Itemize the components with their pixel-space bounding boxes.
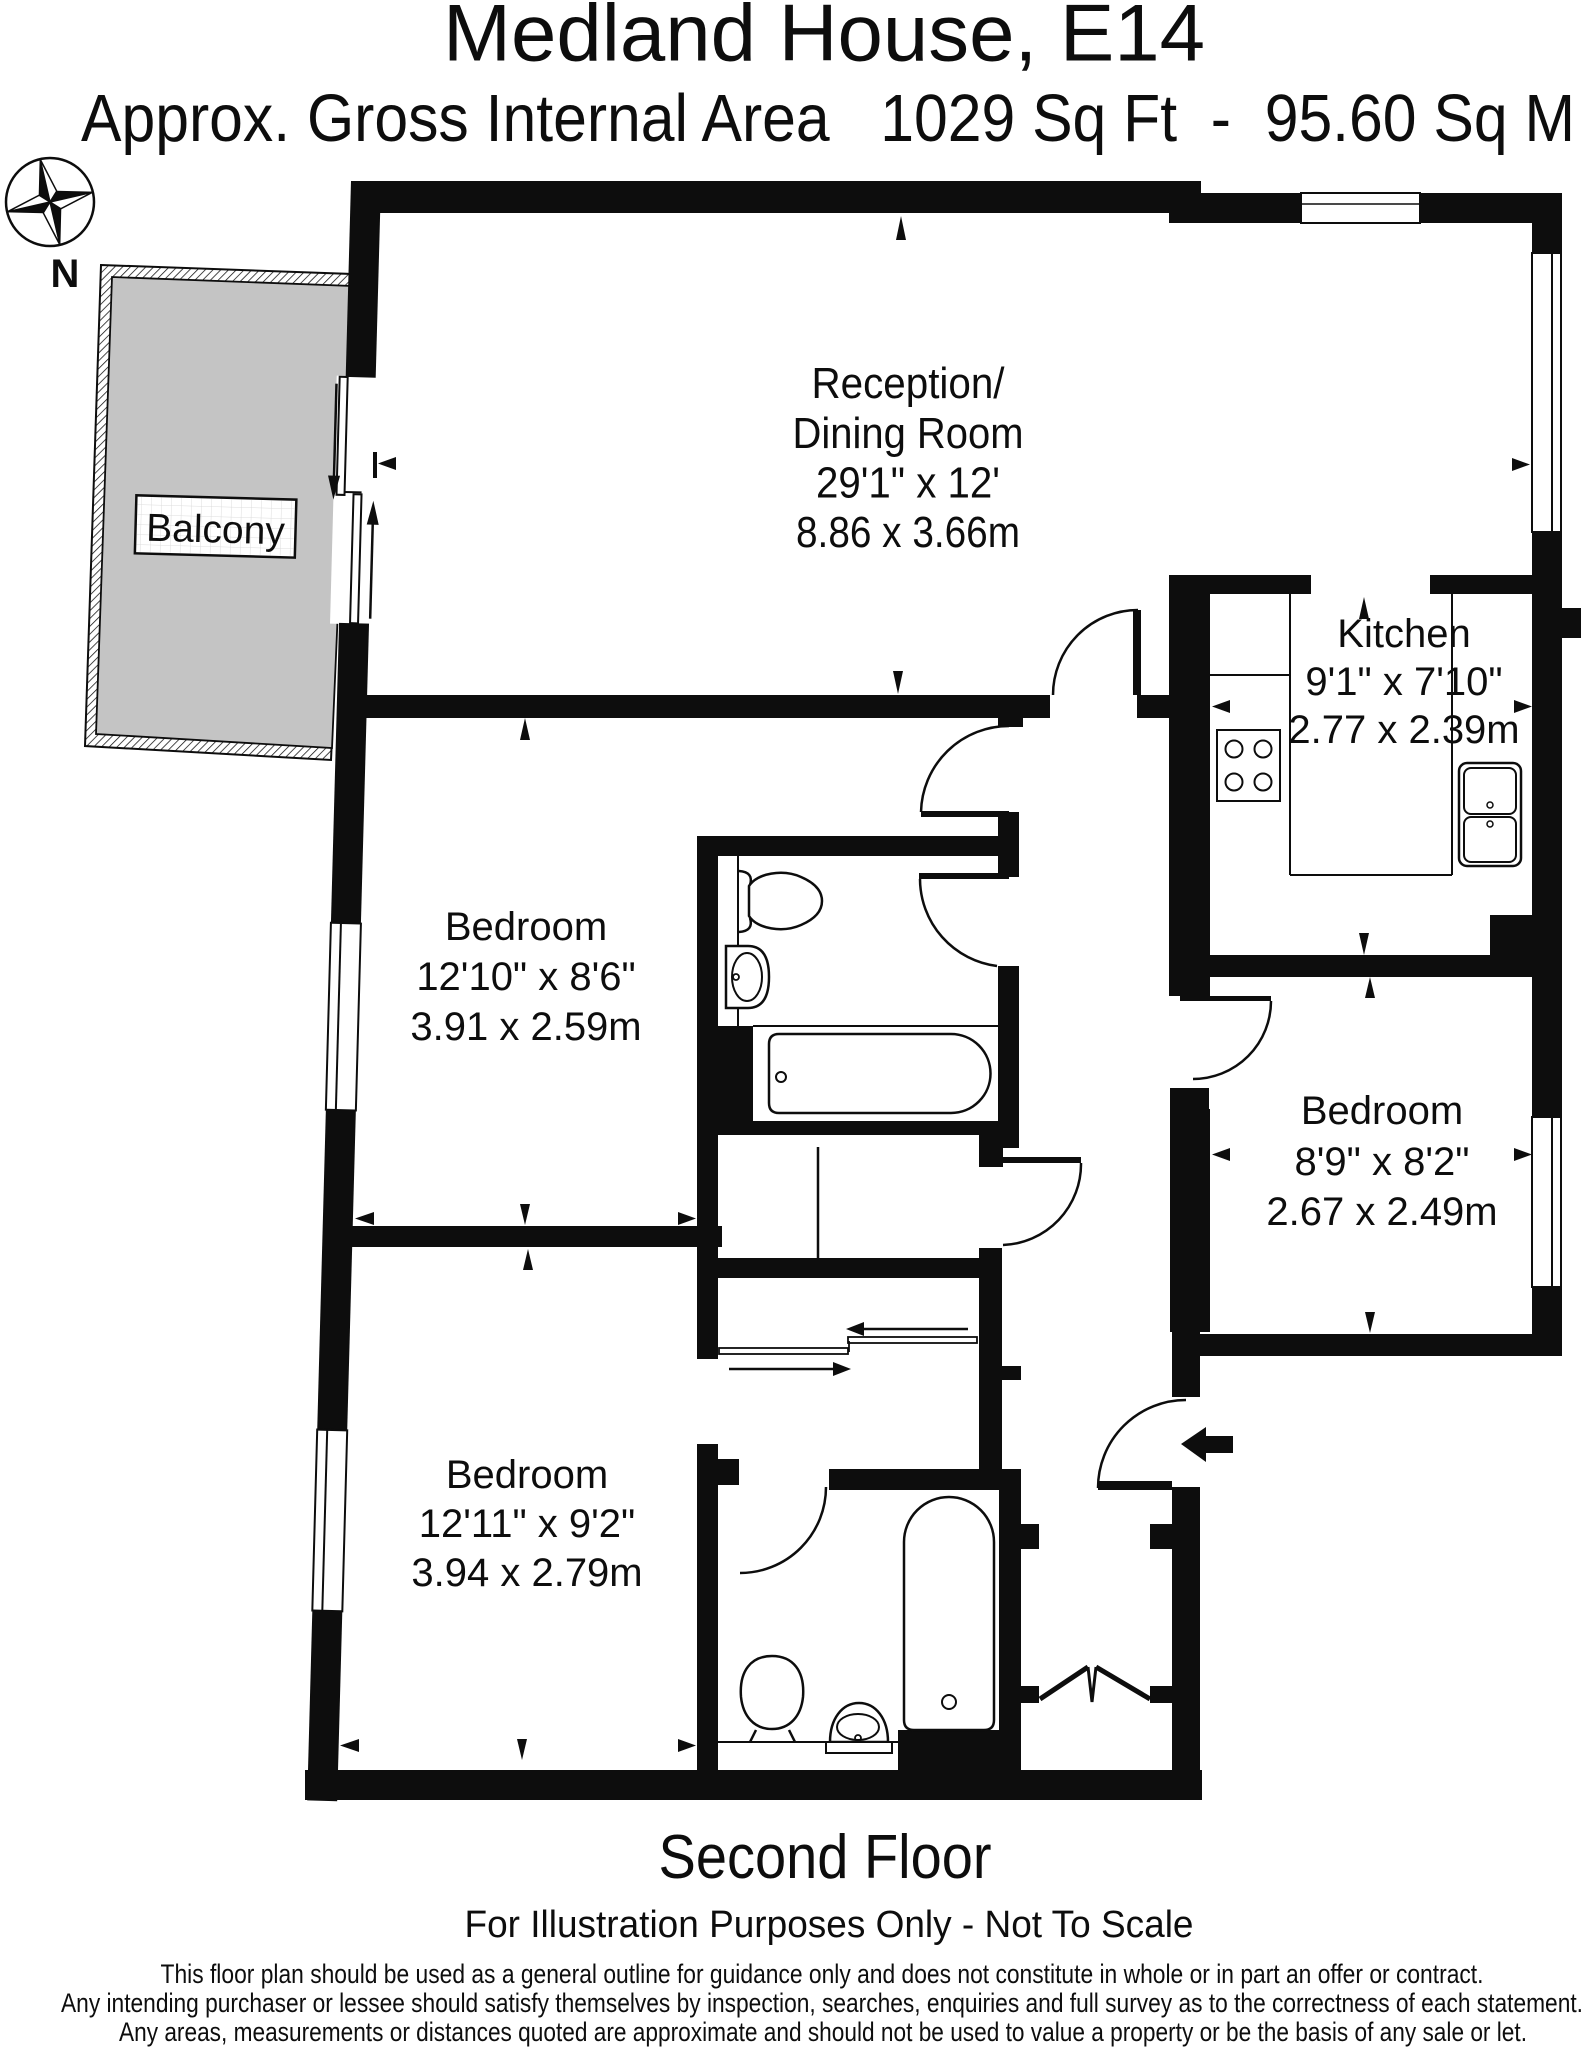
svg-text:Any intending purchaser or les: Any intending purchaser or lessee should… [61,1988,1583,2018]
svg-text:Dining Room: Dining Room [793,409,1024,458]
svg-text:2.77 x 2.39m: 2.77 x 2.39m [1288,708,1519,752]
svg-text:12'10" x 8'6": 12'10" x 8'6" [416,955,635,999]
svg-text:2.67 x 2.49m: 2.67 x 2.49m [1266,1190,1497,1234]
svg-text:Reception/: Reception/ [812,359,1006,408]
svg-text:8'9" x 8'2": 8'9" x 8'2" [1295,1140,1470,1184]
svg-text:This floor plan should be used: This floor plan should be used as a gene… [161,1959,1484,1989]
svg-text:Balcony: Balcony [146,507,286,554]
svg-text:Any areas, measurements or dis: Any areas, measurements or distances quo… [119,2017,1527,2047]
svg-text:29'1" x 12': 29'1" x 12' [816,459,1000,508]
svg-text:Bedroom: Bedroom [446,1453,608,1497]
svg-text:3.94 x 2.79m: 3.94 x 2.79m [411,1551,642,1595]
svg-text:For Illustration Purposes Only: For Illustration Purposes Only - Not To … [465,1904,1194,1946]
svg-text:N: N [51,252,80,296]
svg-text:3.91 x 2.59m: 3.91 x 2.59m [410,1005,641,1049]
svg-text:Bedroom: Bedroom [445,905,607,949]
svg-text:Bedroom: Bedroom [1301,1089,1463,1133]
svg-text:9'1" x 7'10": 9'1" x 7'10" [1305,660,1502,704]
svg-text:Medland House, E14: Medland House, E14 [443,0,1205,79]
svg-text:8.86 x 3.66m: 8.86 x 3.66m [796,508,1020,557]
svg-text:Second Floor: Second Floor [659,1823,992,1892]
svg-text:Kitchen: Kitchen [1337,612,1470,656]
svg-text:12'11" x 9'2": 12'11" x 9'2" [419,1502,635,1546]
svg-text:Approx. Gross Internal Area: Approx. Gross Internal Area 1029 Sq Ft -… [81,81,1575,156]
